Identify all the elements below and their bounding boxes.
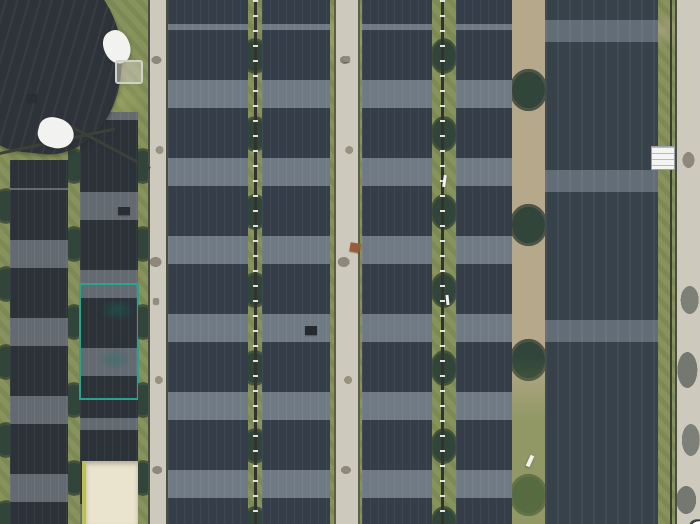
covered-pond-row-g — [545, 0, 658, 524]
equipment-box-3 — [27, 94, 37, 102]
stone-1 — [343, 56, 350, 62]
equipment-box-1 — [118, 207, 130, 215]
holding-pen — [115, 60, 143, 84]
stone-2 — [153, 298, 159, 304]
covered-pond-row-e — [362, 0, 432, 524]
fence-line-right — [658, 0, 675, 524]
covered-pond-row-c — [168, 0, 248, 524]
service-rail-cd — [248, 0, 262, 524]
concrete-path-right — [675, 0, 700, 524]
exposed-ponds-walkway — [512, 0, 545, 524]
brick-debris — [349, 242, 360, 253]
covered-pond-row-d — [262, 0, 330, 524]
covered-pond-row-b-lower — [80, 400, 138, 462]
covered-pond-row-f — [456, 0, 512, 524]
teal-greenhouse — [79, 283, 139, 400]
covered-pond-row-a — [10, 160, 68, 524]
watermark-site-text: Chinanews.com — [690, 519, 700, 524]
solar-panel — [651, 146, 675, 170]
concrete-path-1 — [148, 0, 168, 524]
aerial-photo: 中新网 Chinanews.com — [0, 0, 700, 524]
pond-rim-strip-bc — [138, 110, 148, 524]
beige-canopy — [82, 461, 138, 524]
equipment-box-2 — [305, 326, 317, 335]
service-rail-ef — [435, 0, 449, 524]
concrete-path-2 — [334, 0, 360, 524]
